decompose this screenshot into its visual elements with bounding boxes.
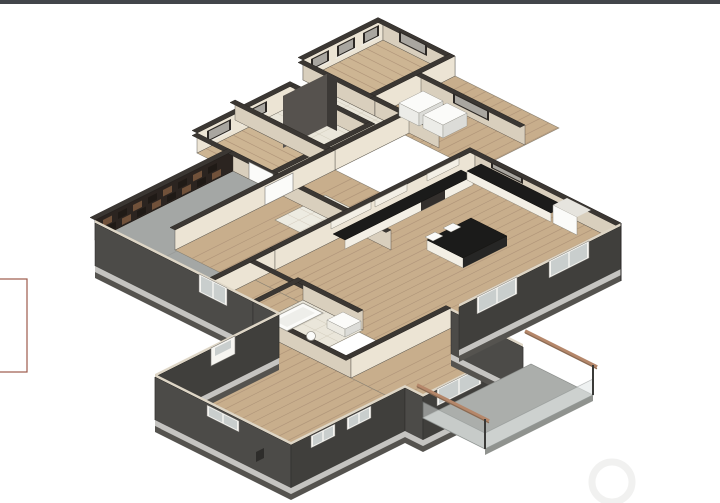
floor-plan-rendering bbox=[0, 0, 720, 503]
pergola-beam bbox=[525, 331, 597, 367]
toilet bbox=[307, 332, 316, 341]
watermark-circle bbox=[592, 462, 632, 502]
top-divider-bar bbox=[0, 0, 720, 4]
pergola-beam-shadow bbox=[525, 333, 597, 369]
left-margin-box bbox=[0, 279, 27, 372]
chimney-side bbox=[327, 74, 337, 131]
listing-photo-page bbox=[0, 0, 720, 503]
master-step-jog-siding bbox=[405, 388, 423, 440]
